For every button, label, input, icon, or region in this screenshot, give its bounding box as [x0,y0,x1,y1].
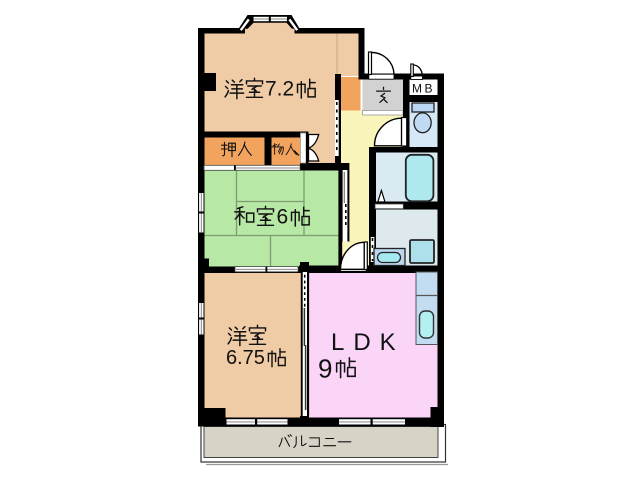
svg-text:9: 9 [318,354,332,384]
svg-text:7.2: 7.2 [265,78,294,101]
svg-text:6.75: 6.75 [226,347,265,369]
svg-text:6: 6 [277,206,289,229]
svg-text:MB: MB [412,82,435,96]
svg-text:LDK: LDK [331,329,405,356]
